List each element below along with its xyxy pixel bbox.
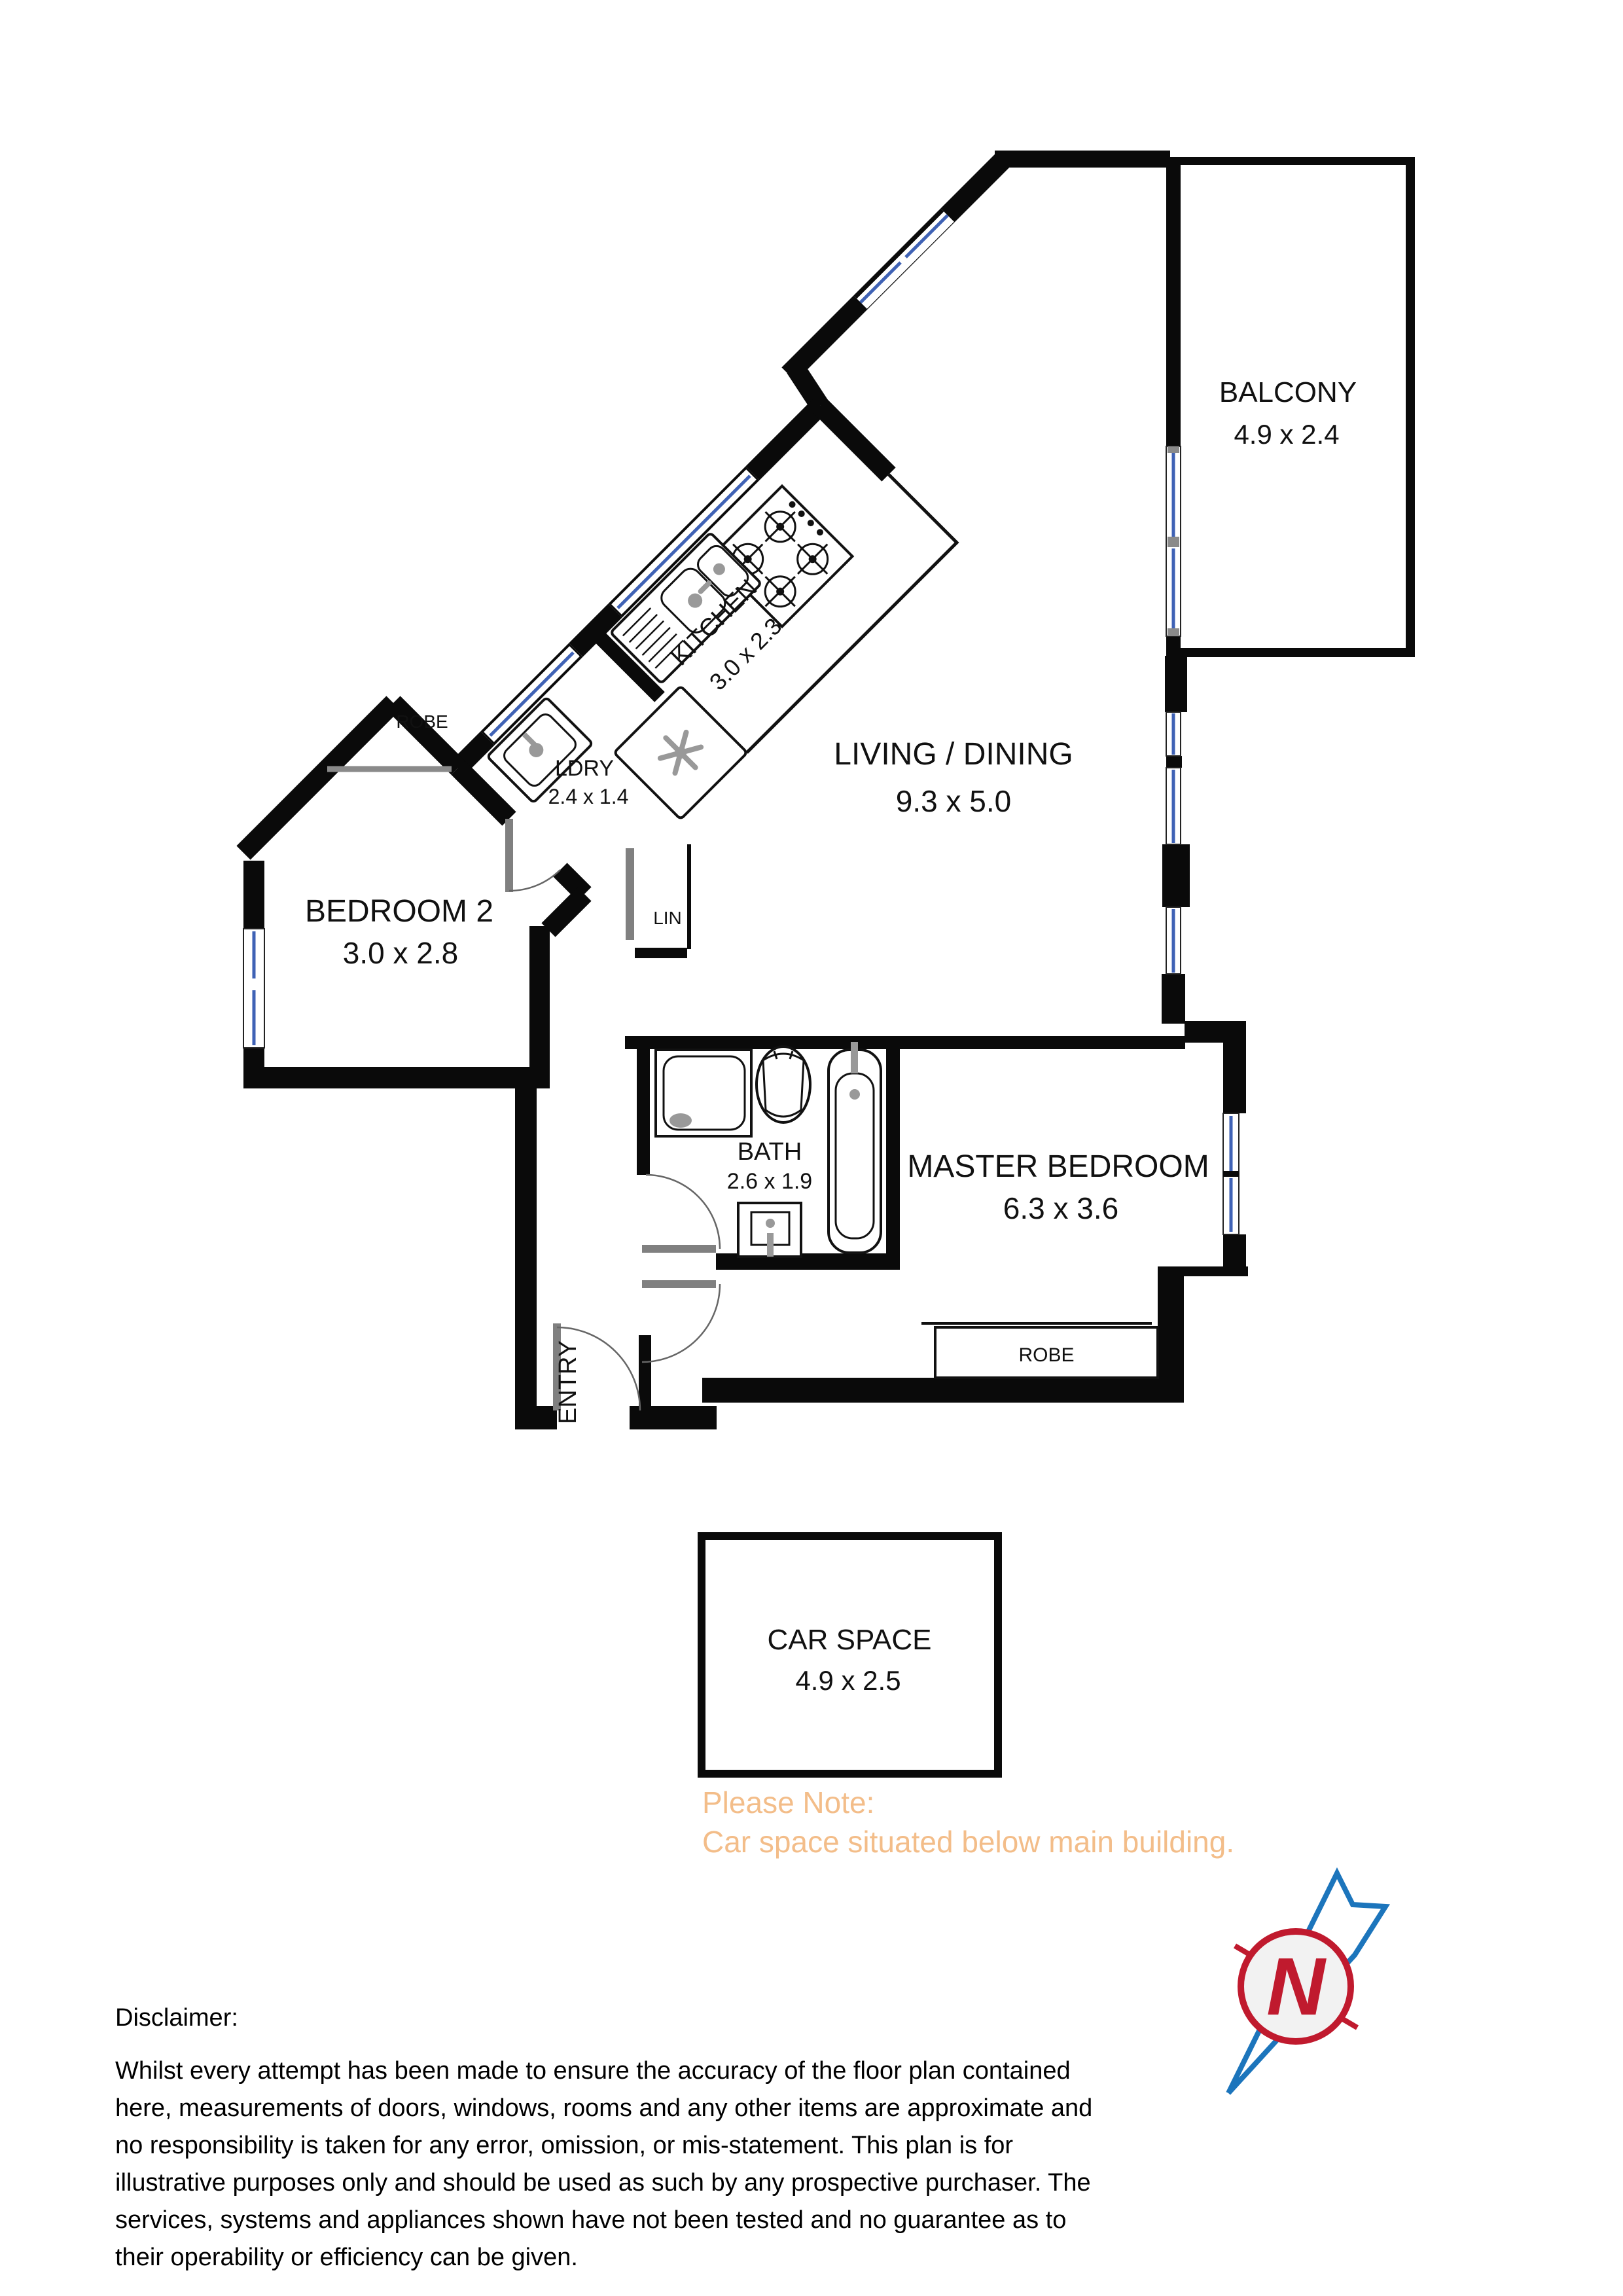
disclaimer-line: their operability or efficiency can be g… [115, 2239, 1136, 2276]
note-body: Car space situated below main building. [702, 1822, 1234, 1861]
disclaimer-line: services, systems and appliances shown h… [115, 2202, 1136, 2239]
disclaimer-line: Whilst every attempt has been made to en… [115, 2053, 1136, 2090]
room-label-bedroom2: BEDROOM 2 [305, 894, 493, 929]
room-label-entry: ENTRY [554, 1340, 582, 1424]
room-dims-balcony: 4.9 x 2.4 [1234, 419, 1339, 450]
disclaimer-title: Disclaimer: [115, 2004, 238, 2032]
room-dims-living: 9.3 x 5.0 [896, 784, 1011, 818]
room-label-linen: LIN [653, 908, 682, 928]
compass-letter: N [1266, 1942, 1327, 2032]
room-dims-laundry: 2.4 x 1.4 [548, 785, 629, 808]
room-label-living: LIVING / DINING [834, 737, 1073, 772]
disclaimer-line: illustrative purposes only and should be… [115, 2164, 1136, 2202]
room-label-balcony: BALCONY [1219, 376, 1357, 408]
disclaimer-body: Whilst every attempt has been made to en… [115, 2053, 1136, 2276]
master-door-leaf [642, 1280, 716, 1288]
floor-plan: BALCONY 4.9 x 2.4 LIVING / DINING 9.3 x … [0, 0, 1623, 2296]
bathtub-icon [829, 1042, 881, 1253]
bath-door-leaf [642, 1245, 716, 1253]
disclaimer-line: here, measurements of doors, windows, ro… [115, 2090, 1136, 2127]
room-label-master: MASTER BEDROOM [907, 1149, 1209, 1184]
room-dims-carspace: 4.9 x 2.5 [795, 1665, 901, 1696]
room-label-carspace: CAR SPACE [767, 1624, 931, 1656]
shower-icon [656, 1050, 751, 1136]
north-compass-icon: N [1228, 1873, 1385, 2093]
room-dims-master: 6.3 x 3.6 [1003, 1191, 1118, 1225]
room-label-laundry: LDRY [555, 756, 614, 781]
bedroom2-door-arc [509, 870, 560, 891]
note-title: Please Note: [702, 1783, 874, 1822]
vanity-icon [738, 1203, 801, 1257]
bath-door-arc [646, 1175, 720, 1249]
linen-door-leaf [626, 848, 634, 940]
floorplan-page: BALCONY 4.9 x 2.4 LIVING / DINING 9.3 x … [0, 0, 1623, 2296]
bedroom2-door-leaf [505, 819, 513, 892]
room-label-robe-master: ROBE [1018, 1344, 1074, 1366]
toilet-icon [757, 1047, 810, 1122]
master-door-arc [642, 1284, 720, 1362]
disclaimer-line: no responsibility is taken for any error… [115, 2127, 1136, 2164]
room-label-bath: BATH [738, 1138, 802, 1166]
room-dims-bath: 2.6 x 1.9 [727, 1169, 812, 1194]
fridge-icon [614, 686, 747, 819]
room-dims-bedroom2: 3.0 x 2.8 [343, 936, 458, 970]
room-label-robe-bedroom2: ROBE [396, 711, 448, 732]
